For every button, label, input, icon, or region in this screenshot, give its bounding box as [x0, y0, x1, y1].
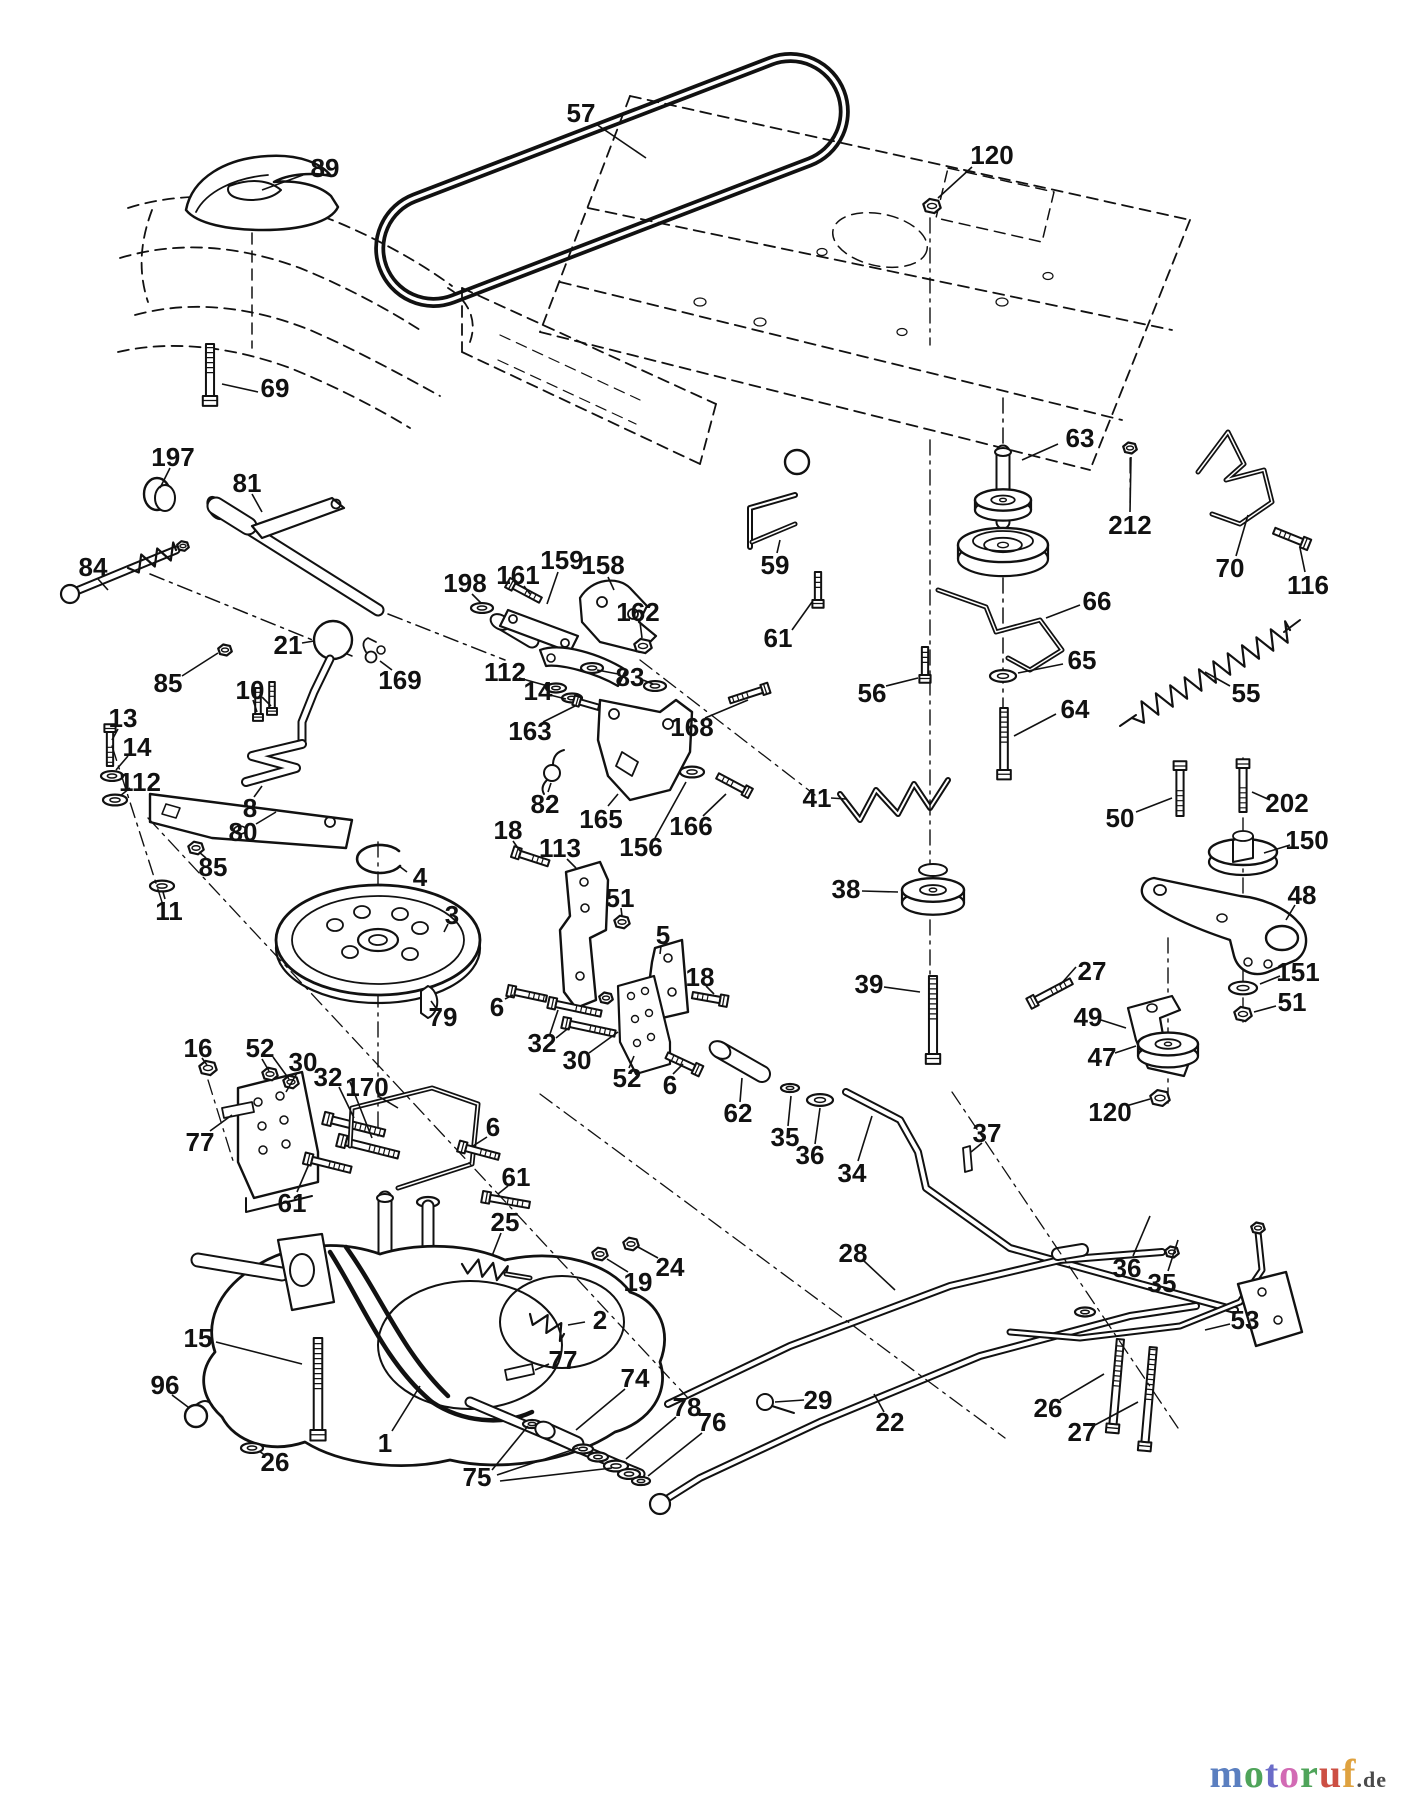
- line-art: [1148, 1374, 1155, 1375]
- part-label: 212: [1108, 510, 1151, 540]
- part-label: 84: [79, 552, 108, 582]
- part-label: 61: [278, 1188, 307, 1218]
- line-art: [218, 645, 232, 656]
- label-leader-line: [547, 572, 558, 604]
- label-leader-line: [858, 1116, 872, 1161]
- part-label: 112: [119, 767, 161, 797]
- line-art: [929, 976, 937, 1054]
- label-leader-line: [775, 1400, 804, 1402]
- label-leader-line: [792, 602, 812, 630]
- part-label: 24: [656, 1252, 685, 1282]
- line-art: [1176, 770, 1183, 816]
- line-art: [1090, 220, 1190, 470]
- line-art: [107, 732, 113, 766]
- line-art: [975, 489, 1031, 510]
- part-label: 41: [803, 783, 832, 813]
- part-label: 77: [549, 1345, 578, 1375]
- label-leader-line: [884, 987, 920, 992]
- line-art: [498, 360, 636, 424]
- part-label: 61: [764, 623, 793, 653]
- watermark-letter: m: [1210, 1751, 1244, 1796]
- line-art: [1113, 1381, 1120, 1382]
- label-leader-line: [648, 1433, 702, 1476]
- line-art: [963, 1146, 972, 1172]
- part-label: 18: [686, 962, 715, 992]
- line-art: [1234, 1007, 1251, 1021]
- label-leader-line: [1115, 1046, 1136, 1053]
- part-label: 4: [413, 862, 428, 892]
- part-label: 48: [1288, 880, 1317, 910]
- part-label: 3: [445, 900, 459, 930]
- part-label: 69: [261, 373, 290, 403]
- line-art: [581, 663, 603, 673]
- watermark-letter: u: [1319, 1751, 1342, 1796]
- part-label: 32: [314, 1062, 343, 1092]
- line-art: [1115, 1361, 1122, 1362]
- line-art: [919, 864, 947, 876]
- line-art: [599, 993, 613, 1004]
- label-leader-line: [1136, 798, 1172, 812]
- part-label: 22: [876, 1407, 905, 1437]
- line-art: [366, 652, 377, 663]
- line-art: [363, 638, 376, 652]
- part-label: 83: [616, 662, 645, 692]
- part-label: 51: [606, 883, 635, 913]
- label-leader-line: [864, 1261, 895, 1290]
- part-label: 53: [1231, 1305, 1260, 1335]
- line-art: [203, 344, 217, 406]
- part-label: 65: [1068, 645, 1097, 675]
- line-art: [1115, 1366, 1122, 1367]
- part-label: 11: [155, 896, 183, 926]
- part-label: 26: [261, 1447, 290, 1477]
- line-art: [500, 610, 578, 652]
- part-label: 1: [378, 1428, 392, 1458]
- label-leader-line: [1060, 1374, 1104, 1400]
- part-label: 36: [796, 1140, 825, 1170]
- line-art: [752, 524, 795, 542]
- line-art: [1145, 1399, 1152, 1400]
- part-label: 161: [496, 560, 539, 590]
- label-leader-line: [938, 167, 972, 198]
- part-label: 14: [524, 676, 553, 706]
- line-art: [1116, 1351, 1123, 1352]
- part-label: 14: [123, 732, 152, 762]
- part-label: 37: [973, 1118, 1002, 1148]
- line-art: [155, 485, 175, 511]
- line-art: [1198, 432, 1272, 524]
- line-art: [185, 1405, 207, 1427]
- line-art: [1239, 768, 1246, 812]
- watermark-letter: f: [1342, 1751, 1356, 1796]
- line-art: [781, 1084, 799, 1092]
- line-art: [206, 344, 214, 396]
- label-leader-line: [815, 1108, 820, 1144]
- watermark-letter: o: [1244, 1751, 1265, 1796]
- label-leader-line: [302, 641, 314, 643]
- line-art: [680, 767, 704, 778]
- part-label: 150: [1285, 825, 1328, 855]
- label-leader-line: [1130, 457, 1131, 512]
- line-art: [262, 1068, 277, 1081]
- part-label: 151: [1276, 957, 1319, 987]
- line-art: [1150, 1349, 1157, 1350]
- line-art: [560, 862, 608, 1008]
- line-art: [1148, 1364, 1155, 1365]
- line-art: [1273, 528, 1303, 545]
- line-art: [1034, 978, 1072, 1003]
- line-art: [1043, 273, 1053, 280]
- part-label: 6: [663, 1070, 677, 1100]
- line-art: [1113, 1386, 1120, 1387]
- part-label: 77: [186, 1127, 215, 1157]
- part-label: 18: [494, 815, 523, 845]
- line-art: [634, 639, 651, 653]
- line-art: [897, 329, 907, 336]
- part-label: 27: [1078, 956, 1107, 986]
- watermark-word: motoruf: [1210, 1751, 1357, 1796]
- line-art: [728, 683, 771, 706]
- line-art: [336, 1134, 400, 1161]
- line-art: [1149, 1354, 1156, 1355]
- label-leader-line: [1101, 1020, 1126, 1028]
- part-label: 168: [670, 712, 713, 742]
- watermark-letter: o: [1279, 1751, 1300, 1796]
- part-label: 62: [724, 1098, 753, 1128]
- label-leader-line: [1205, 1324, 1230, 1330]
- part-label: 166: [669, 811, 712, 841]
- part-label: 165: [579, 804, 622, 834]
- label-leader-line: [1014, 714, 1056, 736]
- line-art: [345, 1139, 399, 1159]
- line-art: [817, 249, 827, 256]
- part-label: 120: [1088, 1097, 1131, 1127]
- label-leader-line: [399, 866, 407, 872]
- diagram-linework: [61, 42, 1311, 1514]
- line-art: [958, 528, 1048, 562]
- line-art: [462, 288, 716, 404]
- part-label: 80: [229, 817, 258, 847]
- line-art: [592, 1248, 607, 1261]
- part-label: 63: [1066, 423, 1095, 453]
- line-art: [1114, 1376, 1121, 1377]
- line-art: [990, 670, 1016, 682]
- line-art: [1237, 759, 1250, 812]
- part-label: 29: [804, 1385, 833, 1415]
- part-label: 76: [698, 1407, 727, 1437]
- part-label: 50: [1106, 803, 1135, 833]
- part-label: 159: [540, 545, 583, 575]
- line-art: [377, 1194, 393, 1202]
- line-art: [544, 765, 560, 781]
- part-label: 55: [1232, 678, 1261, 708]
- line-art: [754, 318, 766, 326]
- part-label: 6: [490, 992, 504, 1022]
- line-art: [267, 682, 277, 715]
- label-leader-line: [182, 653, 218, 676]
- part-label: 74: [621, 1363, 650, 1393]
- line-art: [1174, 761, 1187, 816]
- part-label: 96: [151, 1370, 180, 1400]
- line-art: [1229, 982, 1257, 995]
- part-label: 162: [616, 597, 659, 627]
- part-label: 51: [1278, 987, 1307, 1017]
- line-art: [252, 498, 344, 538]
- line-art: [471, 603, 493, 613]
- line-art: [377, 646, 385, 654]
- line-art: [1138, 1033, 1198, 1056]
- line-art: [997, 708, 1011, 779]
- line-art: [500, 335, 640, 400]
- line-art: [828, 205, 933, 276]
- part-label: 10: [236, 675, 265, 705]
- line-art: [216, 506, 248, 526]
- line-art: [815, 572, 821, 600]
- label-leader-line: [500, 1468, 612, 1481]
- line-art: [926, 976, 940, 1064]
- label-leader-line: [1254, 1006, 1276, 1012]
- line-art: [1075, 1308, 1095, 1317]
- part-label: 169: [378, 665, 421, 695]
- part-label: 113: [539, 833, 581, 863]
- part-label: 66: [1083, 586, 1112, 616]
- label-leader-line: [1300, 548, 1305, 572]
- line-art: [623, 1238, 638, 1251]
- line-art: [1233, 831, 1253, 841]
- part-label: 120: [970, 140, 1013, 170]
- line-art: [812, 572, 823, 608]
- label-leader-line: [596, 124, 646, 158]
- line-art: [1146, 1389, 1153, 1390]
- part-label: 27: [1068, 1417, 1097, 1447]
- line-art: [388, 614, 505, 660]
- line-art: [632, 1477, 650, 1485]
- part-label: 57: [567, 98, 596, 128]
- line-art: [614, 916, 629, 929]
- line-art: [996, 298, 1008, 306]
- part-label: 15: [184, 1323, 213, 1353]
- line-art: [936, 168, 1054, 242]
- part-label: 61: [502, 1162, 531, 1192]
- part-label: 6: [486, 1112, 500, 1142]
- part-label: 75: [463, 1462, 492, 1492]
- line-art: [1149, 1359, 1156, 1360]
- part-label: 39: [855, 969, 884, 999]
- label-leader-line: [222, 384, 258, 392]
- line-art: [1147, 1384, 1154, 1385]
- part-label: 34: [838, 1158, 867, 1188]
- part-label: 16: [184, 1033, 213, 1063]
- line-art: [150, 881, 174, 892]
- line-art: [199, 1061, 216, 1075]
- part-label: 5: [656, 920, 670, 950]
- line-art: [142, 210, 152, 302]
- part-label: 30: [563, 1045, 592, 1075]
- line-art: [902, 878, 964, 902]
- part-label: 49: [1074, 1002, 1103, 1032]
- line-art: [314, 621, 352, 659]
- part-label: 56: [858, 678, 887, 708]
- watermark-logo: motoruf.de: [1210, 1754, 1388, 1794]
- part-label: 163: [508, 716, 551, 746]
- line-art: [1138, 1347, 1160, 1452]
- line-art: [462, 352, 700, 464]
- part-label: 156: [619, 832, 662, 862]
- label-leader-line: [1046, 605, 1080, 618]
- line-art: [938, 590, 1062, 670]
- line-art: [514, 989, 547, 1002]
- line-art: [785, 450, 809, 474]
- line-art: [1165, 1247, 1179, 1258]
- line-art: [1120, 715, 1136, 726]
- line-art: [923, 199, 940, 213]
- line-art: [922, 647, 928, 675]
- part-label: 25: [491, 1207, 520, 1237]
- part-label: 2: [593, 1305, 607, 1335]
- label-leader-line: [886, 678, 918, 686]
- line-art: [553, 750, 564, 765]
- line-art: [1114, 1371, 1121, 1372]
- line-art: [1251, 1223, 1265, 1234]
- line-art: [358, 929, 398, 951]
- line-art: [650, 1494, 670, 1514]
- line-art: [1132, 621, 1290, 722]
- part-label: 116: [1287, 570, 1329, 600]
- line-art: [588, 208, 1172, 330]
- line-art: [177, 541, 189, 551]
- part-label: 81: [233, 468, 262, 498]
- line-art: [61, 585, 79, 603]
- parts-diagram: 5789120691978163212701168419816115915816…: [0, 0, 1401, 1800]
- line-art: [919, 647, 930, 683]
- part-label: 89: [311, 153, 340, 183]
- part-label: 32: [528, 1028, 557, 1058]
- part-label: 36: [1113, 1253, 1142, 1283]
- part-label: 52: [613, 1063, 642, 1093]
- part-label: 112: [484, 657, 526, 687]
- line-art: [1148, 1369, 1155, 1370]
- line-art: [588, 1453, 608, 1462]
- line-art: [716, 773, 745, 792]
- part-label: 82: [531, 789, 560, 819]
- watermark-letter: r: [1300, 1751, 1319, 1796]
- watermark-tld: .de: [1357, 1767, 1388, 1792]
- part-label: 64: [1061, 694, 1090, 724]
- part-label: 38: [832, 874, 861, 904]
- part-label: 59: [761, 550, 790, 580]
- page: { "watermark": { "word": "motoruf", "let…: [0, 0, 1401, 1800]
- part-label: 47: [1088, 1042, 1117, 1072]
- line-art: [757, 1394, 773, 1410]
- line-art: [691, 990, 728, 1007]
- line-art: [1147, 1379, 1154, 1380]
- line-art: [694, 298, 706, 306]
- part-label: 35: [1148, 1268, 1177, 1298]
- label-leader-line: [1205, 672, 1230, 686]
- line-art: [1146, 1394, 1153, 1395]
- part-label: 202: [1265, 788, 1308, 818]
- line-art: [1026, 976, 1074, 1009]
- part-label: 158: [581, 550, 624, 580]
- part-label: 13: [109, 703, 138, 733]
- line-art: [238, 1072, 318, 1198]
- line-art: [457, 1141, 500, 1163]
- line-art: [772, 1406, 794, 1413]
- part-label: 79: [429, 1002, 458, 1032]
- line-art: [846, 1092, 1235, 1310]
- label-leader-line: [831, 798, 846, 799]
- part-label: 85: [199, 852, 228, 882]
- line-art: [995, 448, 1011, 456]
- line-art: [715, 771, 753, 798]
- line-art: [1272, 526, 1311, 551]
- part-label: 70: [1216, 553, 1245, 583]
- part-label: 85: [154, 668, 183, 698]
- line-art: [1106, 1339, 1127, 1434]
- part-label: 21: [274, 630, 303, 660]
- line-art: [700, 404, 716, 464]
- part-label: 52: [246, 1033, 275, 1063]
- label-leader-line: [862, 891, 898, 892]
- line-art: [1123, 443, 1137, 454]
- part-label: 19: [624, 1267, 653, 1297]
- line-art: [1150, 1090, 1169, 1106]
- line-art: [807, 1094, 833, 1106]
- line-art: [692, 992, 721, 1003]
- part-label: 198: [443, 568, 486, 598]
- part-label: 28: [839, 1238, 868, 1268]
- line-art: [1058, 1250, 1082, 1254]
- watermark-letter: t: [1265, 1751, 1279, 1796]
- part-label: 26: [1034, 1393, 1063, 1423]
- part-label: 197: [151, 442, 194, 472]
- part-label: 170: [345, 1072, 388, 1102]
- line-art: [569, 1021, 615, 1037]
- line-art: [1116, 1356, 1123, 1357]
